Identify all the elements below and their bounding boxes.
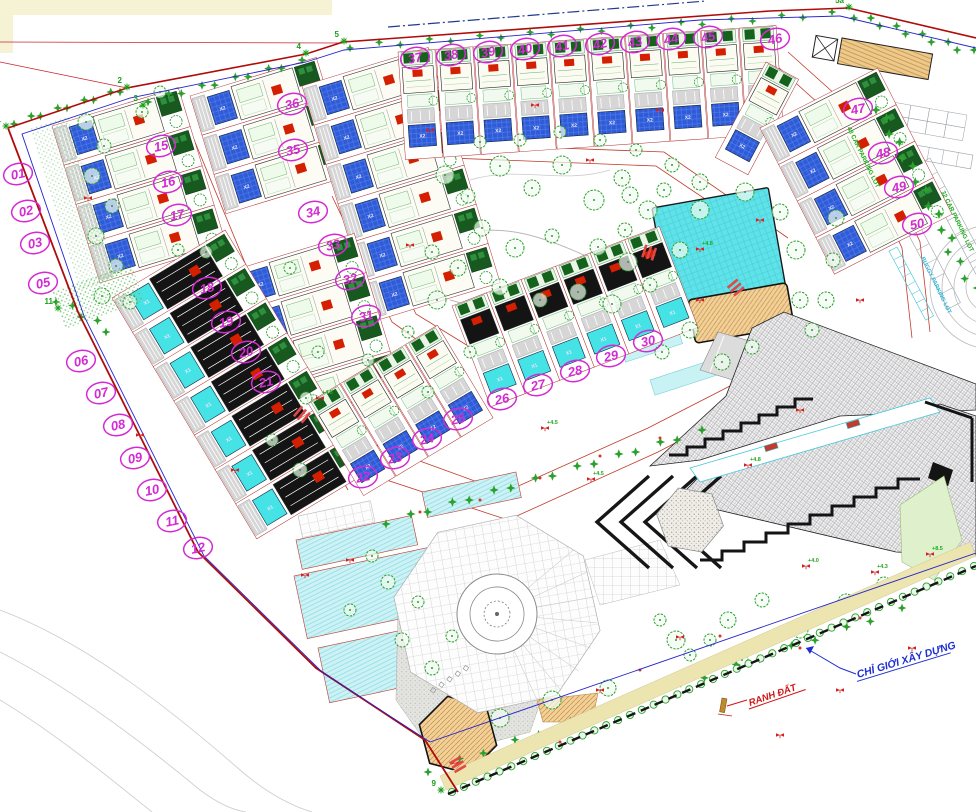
tree-icon <box>506 239 524 257</box>
tree-icon <box>654 614 666 626</box>
shrub-icon <box>973 284 976 293</box>
construction-boundary-text: CHỈ GIỚI XÂY DỰNG <box>855 638 957 681</box>
tree-icon <box>412 596 424 608</box>
lot-number: 41 <box>552 37 570 55</box>
tree-icon <box>594 134 606 146</box>
tree-icon <box>446 630 458 642</box>
elevation-marker-icon <box>541 426 549 431</box>
tree-icon <box>464 346 476 358</box>
hedge-icon <box>745 660 752 667</box>
tree-icon <box>362 354 374 366</box>
svg-text:X2: X2 <box>647 117 654 123</box>
elevation-marker-icon <box>776 733 784 738</box>
tree-icon <box>105 199 119 213</box>
lot-number: 02 <box>17 202 35 220</box>
lot-number: 31 <box>357 307 374 325</box>
tree-icon <box>570 284 586 300</box>
shrub-icon <box>424 768 433 777</box>
shrub-icon <box>953 46 962 55</box>
shrub-icon <box>898 604 907 613</box>
parking-stalls <box>889 247 934 320</box>
elevation-label: +4.5 <box>322 390 333 396</box>
lot-number-bubble: 10 <box>136 477 169 504</box>
shrub-icon <box>102 328 111 337</box>
tree-icon <box>805 323 819 337</box>
svg-text:X2: X2 <box>609 120 616 126</box>
lot-number-bubble: 06 <box>65 348 98 375</box>
elevation-marker-icon <box>136 433 144 438</box>
shrub-icon <box>589 459 599 469</box>
vertex-number: 2 <box>118 76 123 85</box>
elevation-label: +4.5 <box>547 420 558 426</box>
svg-text:X2: X2 <box>533 125 540 131</box>
vertex-number: 3 <box>134 94 139 103</box>
lot-number: 01 <box>9 165 26 183</box>
shrub-icon <box>799 13 808 22</box>
shrub-icon <box>497 34 506 43</box>
vertex-number: 5 <box>335 30 340 39</box>
tree-icon <box>691 201 709 219</box>
tree-icon <box>366 550 378 562</box>
svg-text:X2: X2 <box>419 133 426 139</box>
shrub-icon <box>576 25 585 34</box>
lot-number: 34 <box>304 203 322 221</box>
tree-icon <box>514 134 526 146</box>
shrub-icon <box>777 11 786 20</box>
shrub-icon <box>960 274 969 283</box>
tree-icon <box>745 340 759 354</box>
tree-icon <box>714 354 730 370</box>
shrub-icon <box>936 225 946 235</box>
elevation-label: +4.8 <box>702 241 713 247</box>
vertex-number: 11 <box>45 297 54 306</box>
svg-text:X2: X2 <box>457 131 464 137</box>
tree-icon <box>533 293 547 307</box>
tree-icon <box>425 245 439 259</box>
lot-number: 09 <box>126 449 144 467</box>
tree-icon <box>792 292 808 308</box>
lot-number: 21 <box>256 373 274 391</box>
tree-icon <box>828 210 844 226</box>
lot-number: 12 <box>189 539 207 557</box>
tree-icon <box>639 201 657 219</box>
parking-32-label: 32 CAR PARKING LOT <box>939 190 975 253</box>
svg-text:X2: X2 <box>571 123 578 129</box>
tree-icon <box>78 114 94 130</box>
tree-icon <box>293 463 307 477</box>
vertex-number: 5a <box>835 0 844 5</box>
tree-icon <box>381 575 395 589</box>
elevation-label: +4.0 <box>808 558 819 564</box>
boundary-post <box>720 698 727 713</box>
tree-icon <box>492 279 508 295</box>
elevation-marker-icon <box>871 570 879 575</box>
tree-icon <box>474 220 490 236</box>
lot-number-bubble: 12 <box>182 535 215 562</box>
tree-icon <box>590 239 606 255</box>
tree-icon <box>755 593 769 607</box>
tree-icon <box>682 322 698 338</box>
shrub-icon <box>866 617 875 626</box>
lot-number: 08 <box>109 416 127 434</box>
svg-text:X2: X2 <box>495 128 502 134</box>
lot-number: 03 <box>26 234 44 252</box>
svg-text:X2: X2 <box>685 115 692 121</box>
land-boundary-label: RANH ĐẤT <box>745 679 806 710</box>
shrub-icon <box>648 24 657 33</box>
tree-icon <box>603 295 621 313</box>
lot-number-bubble: 34 <box>297 199 330 226</box>
tree-icon <box>619 253 637 271</box>
shrub-icon <box>614 449 624 459</box>
shrub-icon <box>918 30 927 39</box>
tree-icon <box>402 326 414 338</box>
elevation-label: +4.3 <box>877 564 888 570</box>
lot-number: 05 <box>34 274 52 292</box>
tree-icon <box>436 166 454 184</box>
lot-number-bubble: 03 <box>19 230 52 257</box>
tree-icon <box>422 386 434 398</box>
tree-icon <box>657 183 671 197</box>
shrub-icon <box>572 461 582 471</box>
tree-icon <box>545 229 559 243</box>
elevation-marker-icon <box>802 564 810 569</box>
tree-icon <box>300 392 312 404</box>
tree-icon <box>461 189 475 203</box>
tree-icon <box>395 633 409 647</box>
lot-number: 10 <box>143 481 161 499</box>
shrub-icon <box>927 38 936 47</box>
tree-icon <box>655 345 669 359</box>
tree-icon <box>490 156 510 176</box>
tree-icon <box>614 170 630 186</box>
tree-icon <box>704 634 716 646</box>
elevation-marker-icon <box>856 298 864 303</box>
shrub-icon <box>346 44 355 53</box>
tree-icon <box>266 434 278 446</box>
tree-icon <box>618 223 632 237</box>
elevation-label: +4.8 <box>750 457 761 463</box>
lot-number-bubble: 07 <box>85 380 118 407</box>
elevation-label: +8.5 <box>932 546 943 552</box>
tree-icon <box>312 346 324 358</box>
lot-number: 06 <box>72 352 90 370</box>
shrub-icon <box>944 248 953 257</box>
elevation-marker-icon <box>586 158 594 163</box>
tree-icon <box>665 158 679 172</box>
tree-icon <box>667 631 685 649</box>
svg-text:X2: X2 <box>722 112 729 118</box>
tree-icon <box>344 604 356 616</box>
tree-icon <box>136 106 148 118</box>
tree-icon <box>584 190 604 210</box>
tree-icon <box>692 174 708 190</box>
elevation-label: +4.5 <box>593 471 604 477</box>
tree-icon <box>772 204 788 220</box>
lot-number: 46 <box>765 30 784 48</box>
shrub-icon <box>956 257 965 266</box>
tree-icon <box>474 136 486 148</box>
tree-icon <box>736 183 754 201</box>
elevation-marker-icon <box>836 688 844 693</box>
site-plan-drawing: X2X2X2X2X2X2X2X2X2X2X2X2X2X2X2X2X2X1X1X1… <box>0 0 976 812</box>
vertex-number: 1 <box>0 115 2 124</box>
vertex-number: 9 <box>432 779 437 788</box>
tree-icon <box>554 126 566 138</box>
tree-icon <box>428 291 446 309</box>
tree-icon <box>450 260 466 276</box>
tree-icon <box>720 612 736 628</box>
tree-icon <box>818 292 834 308</box>
tree-icon <box>172 244 184 256</box>
tree-icon <box>553 156 571 174</box>
tree-icon <box>826 253 840 267</box>
lot-number: 11 <box>164 512 180 529</box>
tree-icon <box>97 139 111 153</box>
tree-icon <box>622 187 638 203</box>
tree-icon <box>284 262 296 274</box>
construction-boundary-label: CHỈ GIỚI XÂY DỰNG <box>853 638 957 681</box>
tree-icon <box>787 241 805 259</box>
lot-number-bubble: 02 <box>10 198 43 225</box>
shrub-icon <box>850 14 859 23</box>
tree-icon <box>425 661 439 675</box>
tree-icon <box>200 246 212 258</box>
tree-icon <box>643 278 657 292</box>
tree-icon <box>630 144 642 156</box>
vertex-number: 4 <box>297 42 302 51</box>
tree-icon <box>524 180 540 196</box>
shrub-icon <box>631 447 641 457</box>
tree-icon <box>672 242 688 258</box>
master-plan-canvas: X2X2X2X2X2X2X2X2X2X2X2X2X2X2X2X2X2X1X1X1… <box>0 0 976 812</box>
lot-number: 07 <box>92 384 110 402</box>
